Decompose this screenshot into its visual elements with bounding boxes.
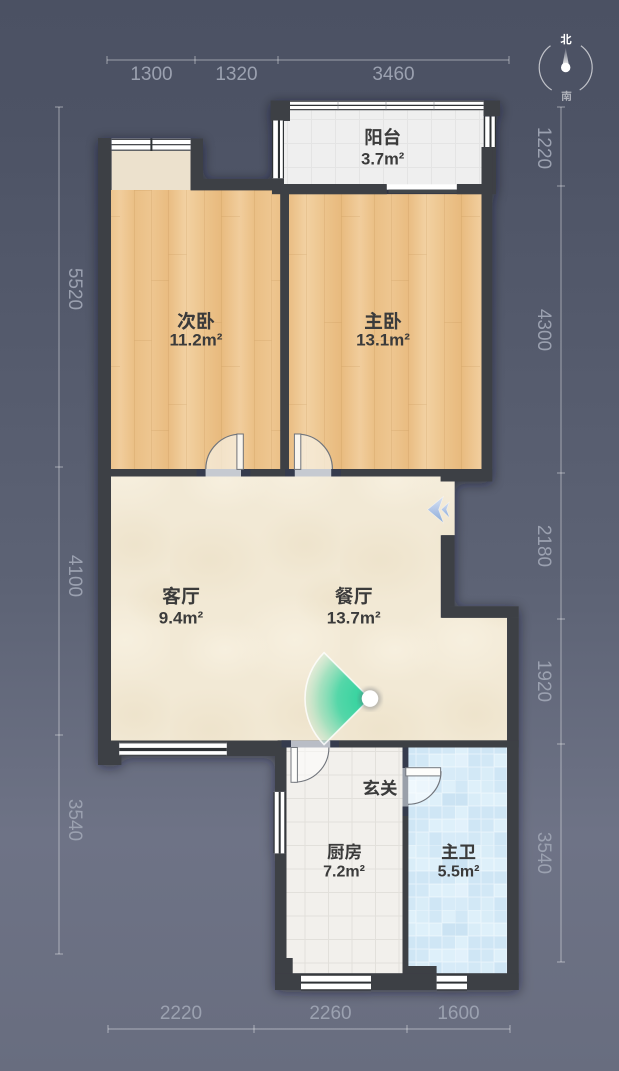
svg-text:1600: 1600 bbox=[437, 1003, 479, 1024]
svg-text:3540: 3540 bbox=[533, 832, 554, 874]
svg-text:4100: 4100 bbox=[64, 555, 85, 597]
svg-text:5520: 5520 bbox=[64, 268, 85, 310]
svg-text:9.4m²: 9.4m² bbox=[159, 609, 204, 628]
svg-text:4300: 4300 bbox=[533, 309, 554, 351]
svg-text:1220: 1220 bbox=[533, 127, 554, 169]
svg-text:2260: 2260 bbox=[309, 1003, 351, 1024]
svg-text:2180: 2180 bbox=[533, 525, 554, 567]
svg-text:3540: 3540 bbox=[64, 799, 85, 841]
svg-text:3.7m²: 3.7m² bbox=[361, 150, 405, 168]
svg-text:5.5m²: 5.5m² bbox=[438, 864, 480, 881]
svg-text:1300: 1300 bbox=[130, 64, 172, 85]
svg-text:3460: 3460 bbox=[372, 64, 414, 85]
svg-text:1920: 1920 bbox=[533, 660, 554, 702]
svg-text:13.7m²: 13.7m² bbox=[327, 609, 381, 628]
svg-text:2220: 2220 bbox=[160, 1003, 202, 1024]
svg-text:11.2m²: 11.2m² bbox=[170, 330, 223, 349]
svg-text:13.1m²: 13.1m² bbox=[356, 330, 410, 349]
svg-text:7.2m²: 7.2m² bbox=[323, 864, 365, 881]
svg-text:1320: 1320 bbox=[215, 64, 257, 85]
